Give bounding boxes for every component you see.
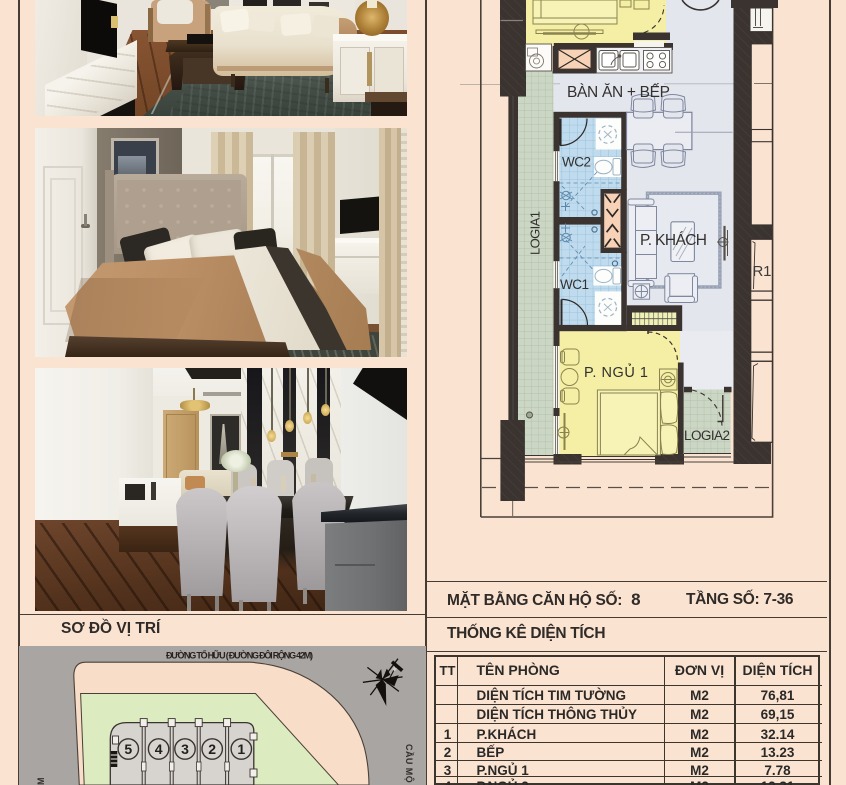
svg-text:LOGIA2: LOGIA2	[684, 428, 730, 443]
svg-text:2: 2	[208, 741, 216, 757]
svg-text:1: 1	[237, 741, 245, 757]
svg-text:R1: R1	[753, 263, 772, 280]
svg-text:3: 3	[181, 741, 189, 757]
svg-text:P. NGỦ 1: P. NGỦ 1	[584, 363, 648, 381]
svg-text:M: M	[36, 778, 46, 785]
svg-text:WC1: WC1	[560, 277, 589, 292]
svg-text:LOGIA1: LOGIA1	[528, 211, 543, 255]
svg-text:4: 4	[155, 741, 163, 757]
svg-text:5: 5	[124, 741, 132, 757]
svg-text:BÀN ĂN + BẾP: BÀN ĂN + BẾP	[567, 84, 670, 101]
svg-text:WC2: WC2	[562, 155, 591, 170]
svg-text:P. KHÁCH: P. KHÁCH	[640, 232, 707, 249]
svg-text:CẦU MỘ LAO: CẦU MỘ LAO	[404, 744, 415, 785]
svg-text:ĐƯỜNG TỐ HỮU ( ĐƯỜNG ĐÔI RỘNG: ĐƯỜNG TỐ HỮU ( ĐƯỜNG ĐÔI RỘNG 42M)	[166, 650, 313, 661]
